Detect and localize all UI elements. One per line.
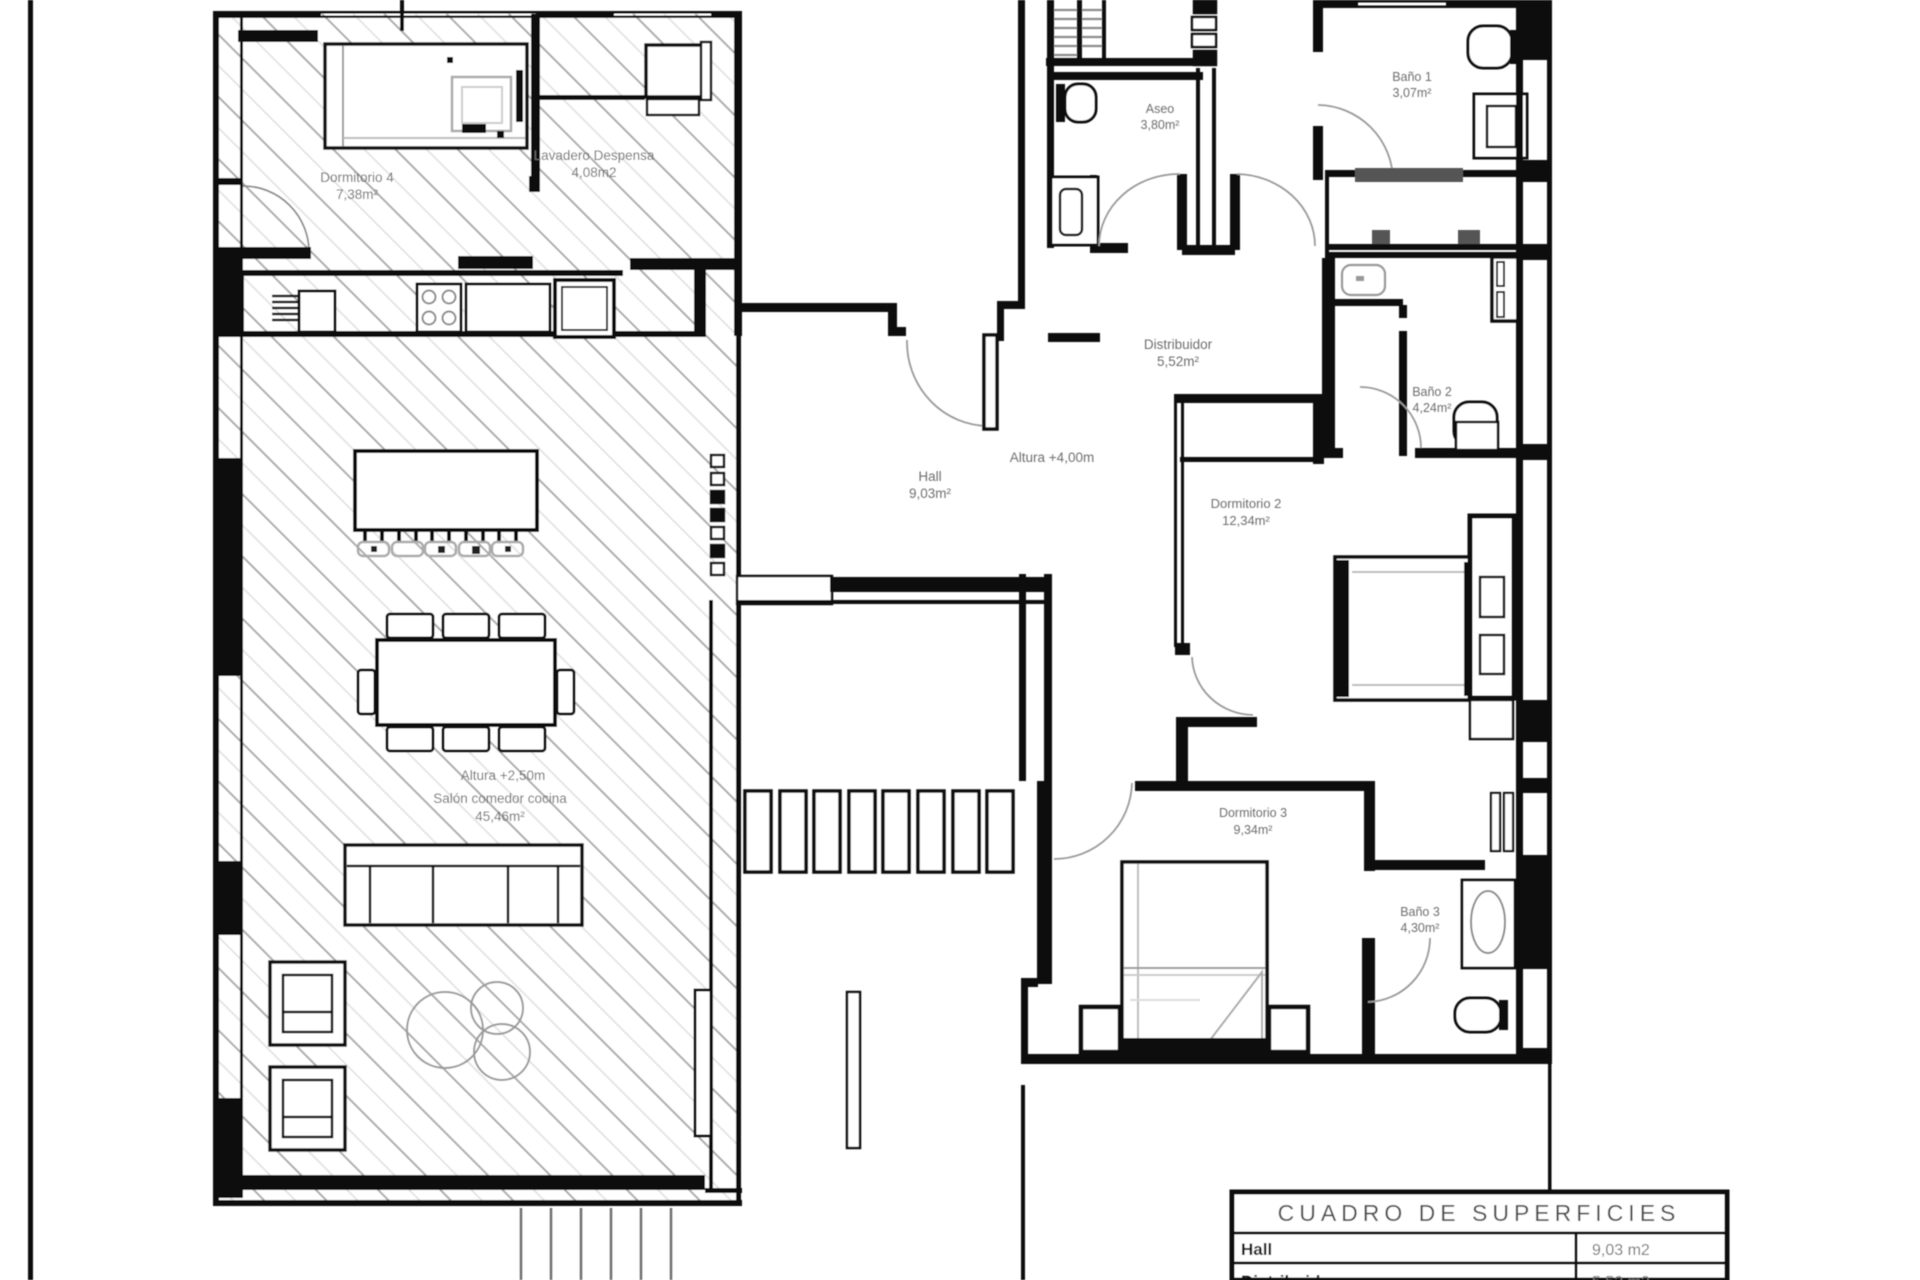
svg-text:Baño 3: Baño 3 — [1400, 905, 1440, 919]
svg-text:Baño 2: Baño 2 — [1412, 385, 1452, 399]
svg-text:Dormitorio 2: Dormitorio 2 — [1211, 496, 1282, 511]
svg-text:45,46m²: 45,46m² — [475, 809, 525, 824]
svg-text:Lavadero Despensa: Lavadero Despensa — [534, 148, 655, 163]
svg-text:4,24m²: 4,24m² — [1413, 401, 1452, 415]
svg-text:Aseo: Aseo — [1146, 102, 1175, 116]
svg-text:9,03 m2: 9,03 m2 — [1592, 1242, 1650, 1259]
svg-text:Distribuidor: Distribuidor — [1144, 337, 1213, 352]
svg-text:Dormitorio 3: Dormitorio 3 — [1219, 806, 1287, 820]
svg-text:Dormitorio 4: Dormitorio 4 — [320, 170, 394, 185]
svg-text:9,34m²: 9,34m² — [1234, 823, 1273, 837]
svg-text:9,03m²: 9,03m² — [909, 486, 952, 501]
svg-text:Altura +2,50m: Altura +2,50m — [461, 768, 545, 783]
svg-text:4,08m2: 4,08m2 — [571, 165, 616, 180]
svg-text:4,30m²: 4,30m² — [1401, 921, 1440, 935]
svg-text:3,07m²: 3,07m² — [1393, 86, 1432, 100]
svg-text:3,80m²: 3,80m² — [1141, 118, 1180, 132]
svg-text:5,52 m2: 5,52 m2 — [1592, 1274, 1650, 1280]
svg-text:Distribuidor: Distribuidor — [1241, 1272, 1338, 1280]
svg-text:Salón comedor cocina: Salón comedor cocina — [433, 791, 567, 806]
svg-text:Hall: Hall — [1241, 1240, 1272, 1259]
svg-text:7,38m²: 7,38m² — [336, 187, 379, 202]
svg-text:Altura +4,00m: Altura +4,00m — [1010, 450, 1094, 465]
svg-text:Hall: Hall — [918, 469, 941, 484]
svg-text:CUADRO DE SUPERFICIES: CUADRO DE SUPERFICIES — [1278, 1200, 1681, 1226]
svg-text:Baño 1: Baño 1 — [1392, 70, 1432, 84]
svg-text:5,52m²: 5,52m² — [1157, 354, 1200, 369]
svg-text:12,34m²: 12,34m² — [1222, 513, 1270, 528]
